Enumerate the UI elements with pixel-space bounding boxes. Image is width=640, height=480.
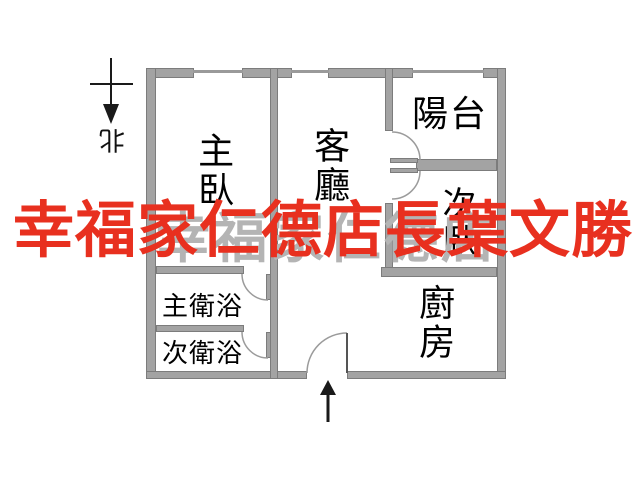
room-label-second-bathroom: 次衛浴 bbox=[162, 340, 243, 368]
entry-arrowhead-icon bbox=[320, 380, 336, 395]
bedroom2-door-arc bbox=[392, 171, 420, 199]
room-label-balcony: 陽台 bbox=[412, 95, 488, 133]
balcony-door-arc bbox=[392, 132, 420, 160]
red-watermark-text: 幸福家仁德店長葉文勝 bbox=[13, 200, 633, 261]
second-bath-door-arc bbox=[242, 332, 268, 358]
master-bath-door-arc bbox=[242, 274, 268, 300]
compass-north-label: 北 bbox=[94, 123, 130, 160]
entry-door-arc bbox=[307, 333, 347, 373]
north-arrowhead-icon bbox=[103, 104, 119, 124]
room-label-master-bathroom: 主衛浴 bbox=[162, 293, 243, 321]
floor-plan-image: 主臥 客廳 陽台 次臥 廚房 主衛浴 次衛浴 北 幸福家仁德店 幸福家仁德店長葉… bbox=[0, 0, 640, 480]
room-label-living-room: 客廳 bbox=[310, 127, 348, 205]
room-label-kitchen: 廚房 bbox=[415, 284, 453, 362]
